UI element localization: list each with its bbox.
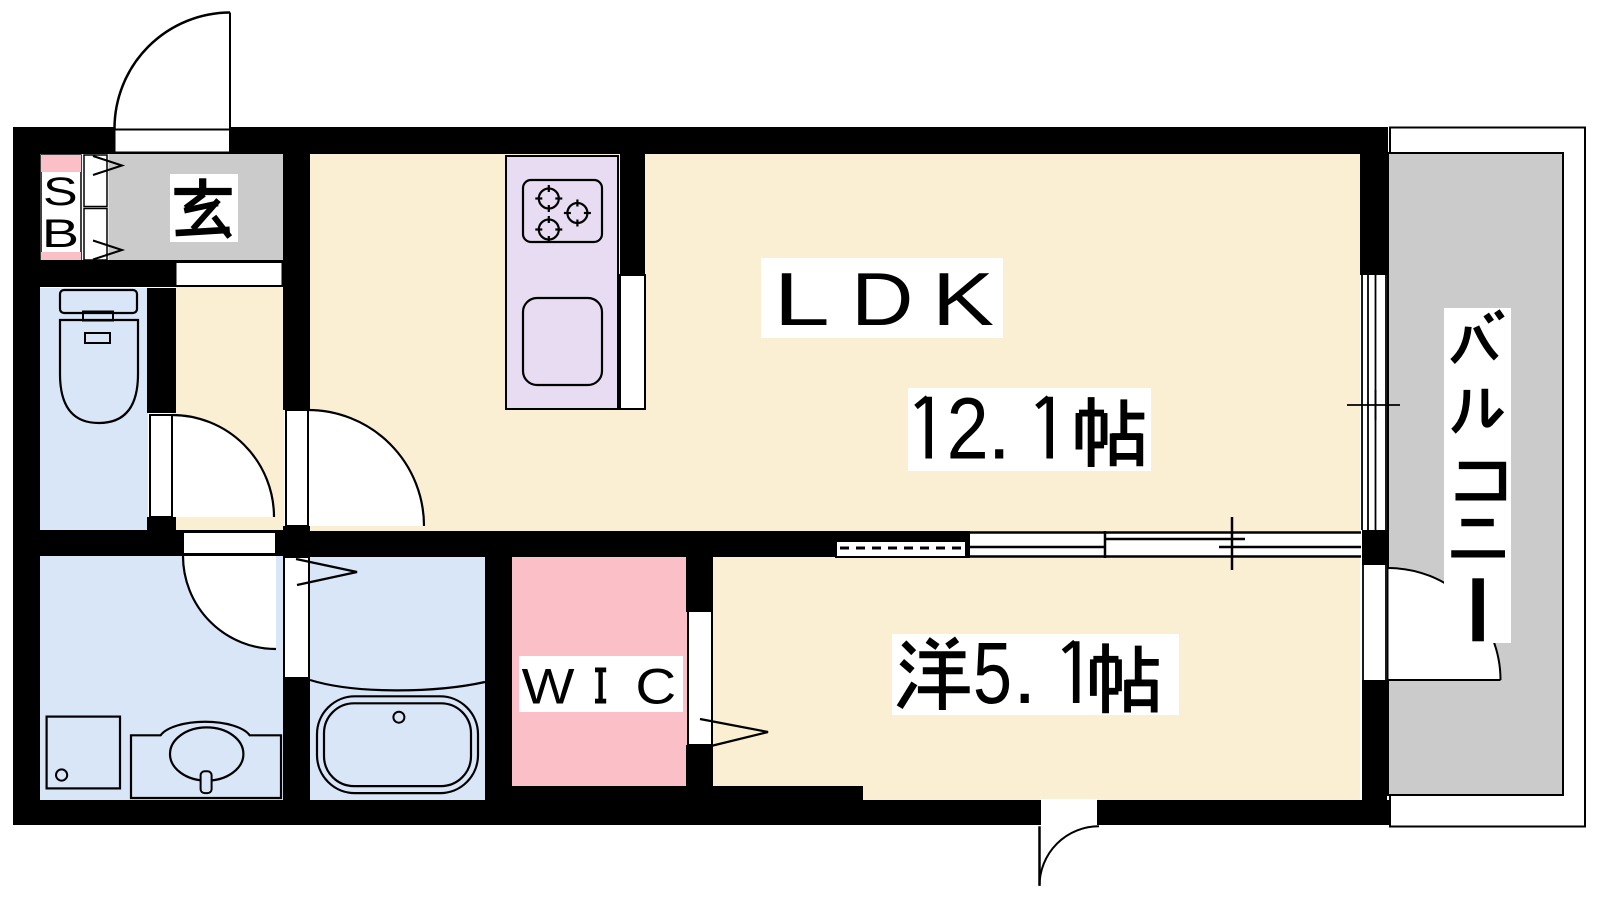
- svg-text:.: .: [987, 382, 1011, 478]
- svg-text:K: K: [932, 258, 994, 341]
- svg-text:2: 2: [947, 381, 989, 478]
- svg-text:L: L: [774, 257, 830, 341]
- svg-text:.: .: [1013, 626, 1037, 722]
- svg-text:5: 5: [973, 624, 1012, 722]
- svg-text:W: W: [522, 659, 575, 715]
- svg-text:C: C: [635, 659, 676, 714]
- svg-text:S: S: [43, 169, 78, 214]
- svg-text:B: B: [42, 212, 79, 256]
- svg-text:D: D: [851, 258, 913, 342]
